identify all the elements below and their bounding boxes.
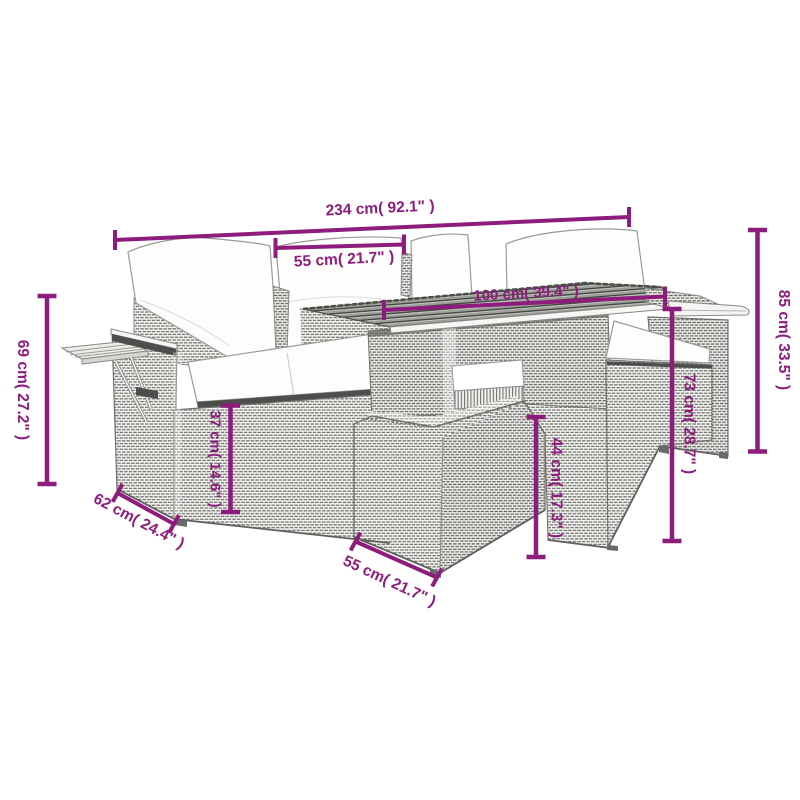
svg-text:37 cm( 14.6" ): 37 cm( 14.6" ) bbox=[207, 410, 224, 507]
svg-text:44 cm( 17.3" ): 44 cm( 17.3" ) bbox=[548, 438, 565, 538]
svg-text:73 cm( 28.7" ): 73 cm( 28.7" ) bbox=[681, 374, 698, 474]
svg-text:69 cm( 27.2" ): 69 cm( 27.2" ) bbox=[14, 340, 31, 440]
svg-text:85 cm( 33.5" ): 85 cm( 33.5" ) bbox=[775, 290, 792, 390]
